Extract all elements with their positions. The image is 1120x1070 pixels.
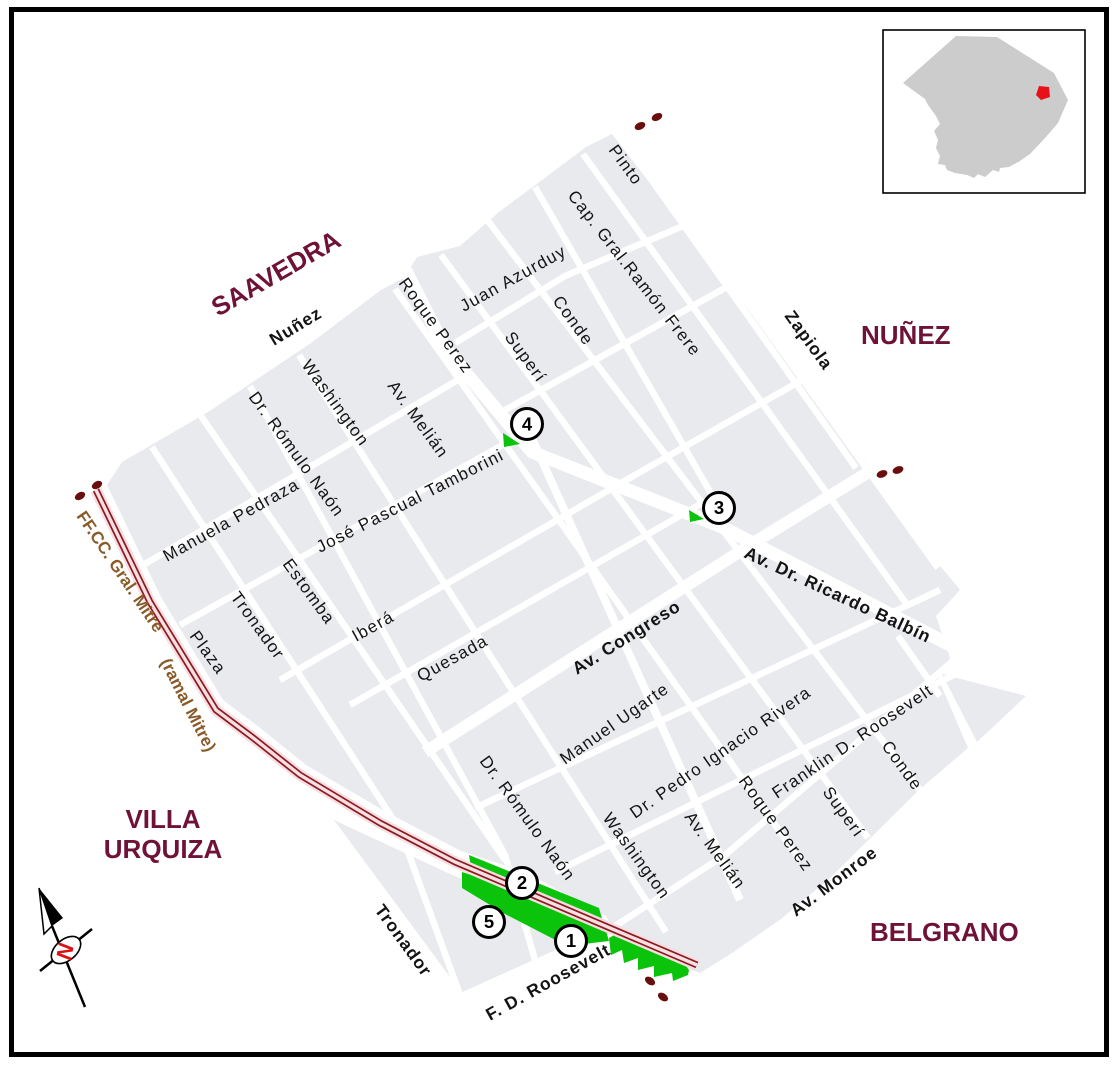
svg-text:5: 5 (484, 911, 494, 932)
svg-text:2: 2 (517, 872, 527, 893)
svg-text:BELGRANO: BELGRANO (870, 917, 1019, 947)
svg-text:URQUIZA: URQUIZA (104, 834, 223, 864)
svg-text:1: 1 (566, 930, 576, 951)
svg-text:NUÑEZ: NUÑEZ (861, 320, 951, 350)
svg-text:4: 4 (522, 414, 533, 435)
svg-text:3: 3 (714, 497, 724, 518)
svg-text:VILLA: VILLA (125, 804, 200, 834)
